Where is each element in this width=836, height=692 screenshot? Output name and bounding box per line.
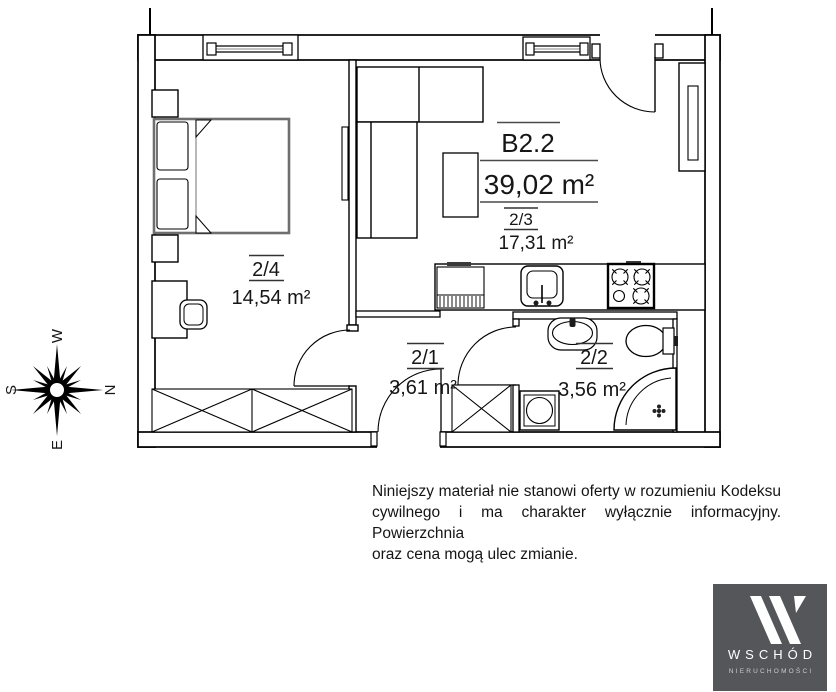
balcony-door <box>592 33 663 112</box>
svg-text:3,56 m²: 3,56 m² <box>558 379 626 401</box>
compass-bottom-label: E <box>49 440 66 450</box>
bed <box>154 119 289 233</box>
unit-label-block: B2.2 39,02 m² 2/3 17,31 m² <box>480 123 598 255</box>
bedroom-wardrobe <box>152 389 352 432</box>
bedroom-door <box>294 330 350 386</box>
disclaimer-line-3: oraz cena mogą ulec zmianie. <box>372 544 781 565</box>
unit-id: B2.2 <box>501 128 555 158</box>
hallway-wardrobe <box>452 385 511 432</box>
svg-text:2/2: 2/2 <box>580 347 608 369</box>
hallway-wall <box>356 311 440 317</box>
compass-rose: W N E S <box>3 328 119 450</box>
nightstand-top <box>152 90 178 117</box>
svg-text:2/1: 2/1 <box>411 347 439 369</box>
tall-cabinet <box>679 63 705 171</box>
kitchen-sink <box>521 266 563 306</box>
bathroom-door <box>458 327 516 385</box>
svg-text:2/4: 2/4 <box>252 259 280 281</box>
compass-left-label: S <box>3 385 20 395</box>
washbasin <box>548 318 597 350</box>
room-label-bathroom: 2/2 3,56 m² <box>558 344 626 402</box>
floor-plan-page: B2.2 39,02 m² 2/3 17,31 m² 2/4 14,54 m² … <box>0 0 836 692</box>
toilet <box>626 326 678 357</box>
kitchen-stove <box>608 264 654 308</box>
svg-text:3,61 m²: 3,61 m² <box>389 377 457 399</box>
washing-machine <box>520 391 559 430</box>
radiator <box>342 127 348 200</box>
nightstand-bottom <box>152 235 178 262</box>
compass-top-label: W <box>49 328 66 343</box>
kitchen-drainer <box>437 267 484 308</box>
bedroom-window <box>203 35 298 60</box>
disclaimer-text: Niniejszy materiał nie stanowi oferty w … <box>372 481 781 565</box>
livingroom-window <box>523 37 590 60</box>
svg-text:14,54 m²: 14,54 m² <box>232 287 311 309</box>
coffee-table <box>443 153 478 217</box>
compass-right-label: N <box>102 385 119 396</box>
room-area-living: 17,31 m² <box>499 233 574 254</box>
room-label-bedroom: 2/4 14,54 m² <box>232 256 311 310</box>
disclaimer-line-2: cywilnego i ma charakter wyłącznie infor… <box>372 502 781 544</box>
desk-chair <box>180 300 207 329</box>
room-number-living: 2/3 <box>509 210 533 229</box>
adjacent-wall-stubs <box>150 8 712 35</box>
floor-plan-drawing: B2.2 39,02 m² 2/3 17,31 m² 2/4 14,54 m² … <box>0 0 836 692</box>
logo-brand-subtitle: NIERUCHOMOŚCI <box>713 668 827 675</box>
logo-brand-name: WSCHÓD <box>713 647 827 662</box>
disclaimer-line-1: Niniejszy materiał nie stanowi oferty w … <box>372 481 781 502</box>
agency-logo: WSCHÓD NIERUCHOMOŚCI <box>713 584 827 691</box>
unit-area: 39,02 m² <box>484 169 595 200</box>
